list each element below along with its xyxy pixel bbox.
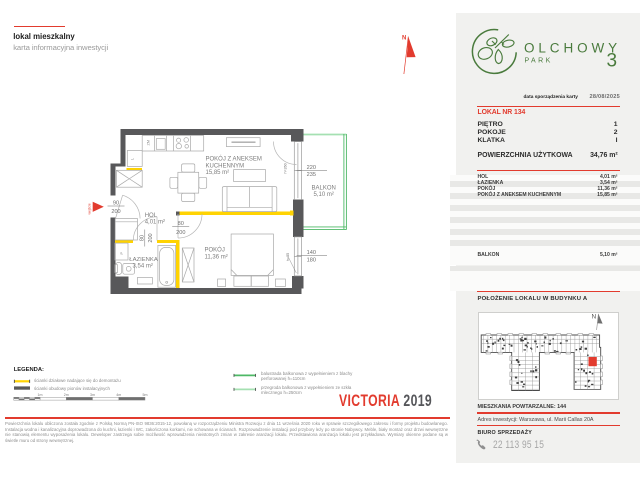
svg-text:235: 235 <box>307 172 316 178</box>
svg-text:L: L <box>131 158 135 160</box>
svg-text:80: 80 <box>178 221 184 227</box>
svg-text:5m: 5m <box>143 393 148 397</box>
svg-text:80: 80 <box>139 235 145 241</box>
svg-text:180: 180 <box>307 257 316 263</box>
svg-text:HOL: HOL <box>145 213 158 219</box>
svg-text:5,10 m²: 5,10 m² <box>314 192 334 198</box>
svg-text:POKÓJ: POKÓJ <box>205 247 225 254</box>
svg-text:POKÓJ Z ANEKSEM: POKÓJ Z ANEKSEM <box>206 156 262 163</box>
svg-text:h=260: h=260 <box>284 163 288 173</box>
svg-text:90: 90 <box>113 201 119 207</box>
svg-text:KUCHENNYM: KUCHENNYM <box>206 163 245 169</box>
svg-text:h=85: h=85 <box>286 253 290 261</box>
svg-text:ŁAZIENKA: ŁAZIENKA <box>129 257 158 263</box>
svg-text:200: 200 <box>148 233 154 242</box>
svg-text:N: N <box>592 314 597 321</box>
svg-text:220: 220 <box>307 165 316 171</box>
svg-text:3: 3 <box>607 51 618 72</box>
svg-text:200: 200 <box>111 209 120 215</box>
svg-text:PARK: PARK <box>525 58 553 65</box>
svg-text:P: P <box>120 252 124 255</box>
svg-text:15,85 m²: 15,85 m² <box>206 170 230 176</box>
svg-text:4,01 m²: 4,01 m² <box>145 220 165 226</box>
svg-text:3m: 3m <box>90 393 95 397</box>
svg-text:N: N <box>402 36 406 42</box>
svg-text:BALKON: BALKON <box>312 185 336 191</box>
svg-text:4m: 4m <box>116 393 121 397</box>
svg-text:3,54 m²: 3,54 m² <box>133 263 153 269</box>
svg-text:ZM: ZM <box>147 140 151 145</box>
svg-text:2m: 2m <box>64 393 69 397</box>
svg-text:140: 140 <box>307 250 316 256</box>
svg-text:200: 200 <box>176 230 185 236</box>
svg-text:1m: 1m <box>38 393 43 397</box>
svg-text:11,36 m²: 11,36 m² <box>205 254 228 260</box>
svg-text:wejście: wejście <box>88 203 92 214</box>
